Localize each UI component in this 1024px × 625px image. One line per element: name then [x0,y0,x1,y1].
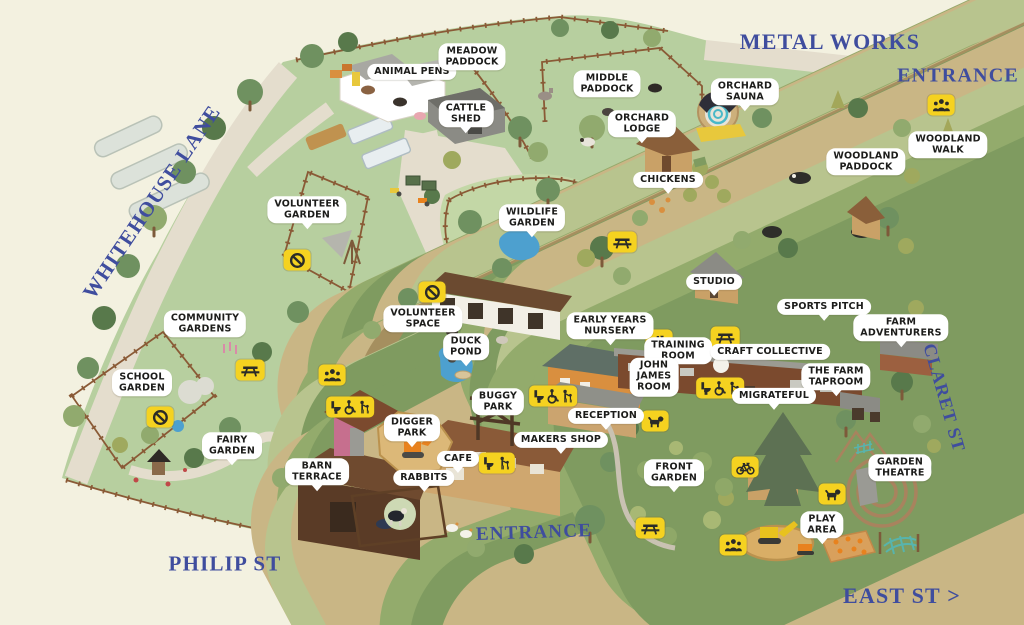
no-entry-icon [147,407,174,428]
label-volunteer-space: VOLUNTEER SPACE [383,305,462,332]
dog-icon [642,411,669,432]
street-philip-st: PHILIP ST [169,552,282,577]
label-orchard-lodge: ORCHARD LODGE [608,110,676,137]
access-icon [529,386,577,407]
label-woodland-walk: WOODLAND WALK [908,131,987,158]
dog-icon [819,484,846,505]
group-icon [319,365,346,386]
label-john-james-room: JOHN JAMES ROOM [630,358,679,397]
label-cattle-shed: CATTLE SHED [439,100,494,127]
label-studio: STUDIO [686,274,742,290]
label-garden-theatre: GARDEN THEATRE [868,454,931,481]
label-front-garden: FRONT GARDEN [644,459,704,486]
picnic-icon [608,232,637,253]
group-icon [720,535,747,556]
bike-icon [732,457,759,478]
toilet-baby-icon [479,453,515,474]
group-icon [928,95,955,116]
label-play-area: PLAY AREA [800,511,843,538]
picnic-icon [236,360,265,381]
label-digger-park: DIGGER PARK [384,414,440,441]
label-orchard-sauna: ORCHARD SAUNA [711,78,779,105]
label-the-farm-taproom: THE FARM TAPROOM [801,363,870,390]
label-community-gardens: COMMUNITY GARDENS [164,310,246,337]
label-cafe: CAFE [437,451,479,467]
label-craft-collective: CRAFT COLLECTIVE [710,344,830,360]
label-farm-adventurers: FARM ADVENTURERS [853,314,948,341]
label-barn-terrace: BARN TERRACE [285,458,349,485]
street-entrance-north: ENTRANCE [897,65,1019,88]
label-sports-pitch: SPORTS PITCH [777,299,871,315]
label-reception: RECEPTION [568,408,644,424]
label-rabbits: RABBITS [393,470,454,486]
label-buggy-park: BUGGY PARK [472,388,524,415]
no-entry-icon [284,250,311,271]
farm-map: ANIMAL PENSMEADOW PADDOCKCATTLE SHEDMIDD… [0,0,1024,625]
street-metal-works: METAL WORKS [740,29,920,55]
label-duck-pond: DUCK POND [443,333,489,360]
label-makers-shop: MAKERS SHOP [514,432,608,448]
label-woodland-paddock: WOODLAND PADDOCK [826,148,905,175]
label-early-years-nursery: EARLY YEARS NURSERY [567,312,654,339]
label-middle-paddock: MIDDLE PADDOCK [573,70,640,97]
label-meadow-paddock: MEADOW PADDOCK [438,43,505,70]
label-wildlife-garden: WILDLIFE GARDEN [499,204,565,231]
street-entrance-south: ENTRANCE [476,520,593,546]
label-migrateful: MIGRATEFUL [732,388,816,404]
label-volunteer-garden: VOLUNTEER GARDEN [267,196,346,223]
access-icon [326,397,374,418]
picnic-icon [636,518,665,539]
street-east-st: EAST ST > [843,583,961,609]
label-fairy-garden: FAIRY GARDEN [202,432,262,459]
label-school-garden: SCHOOL GARDEN [112,369,172,396]
label-chickens: CHICKENS [633,172,703,188]
no-entry-icon [419,282,446,303]
